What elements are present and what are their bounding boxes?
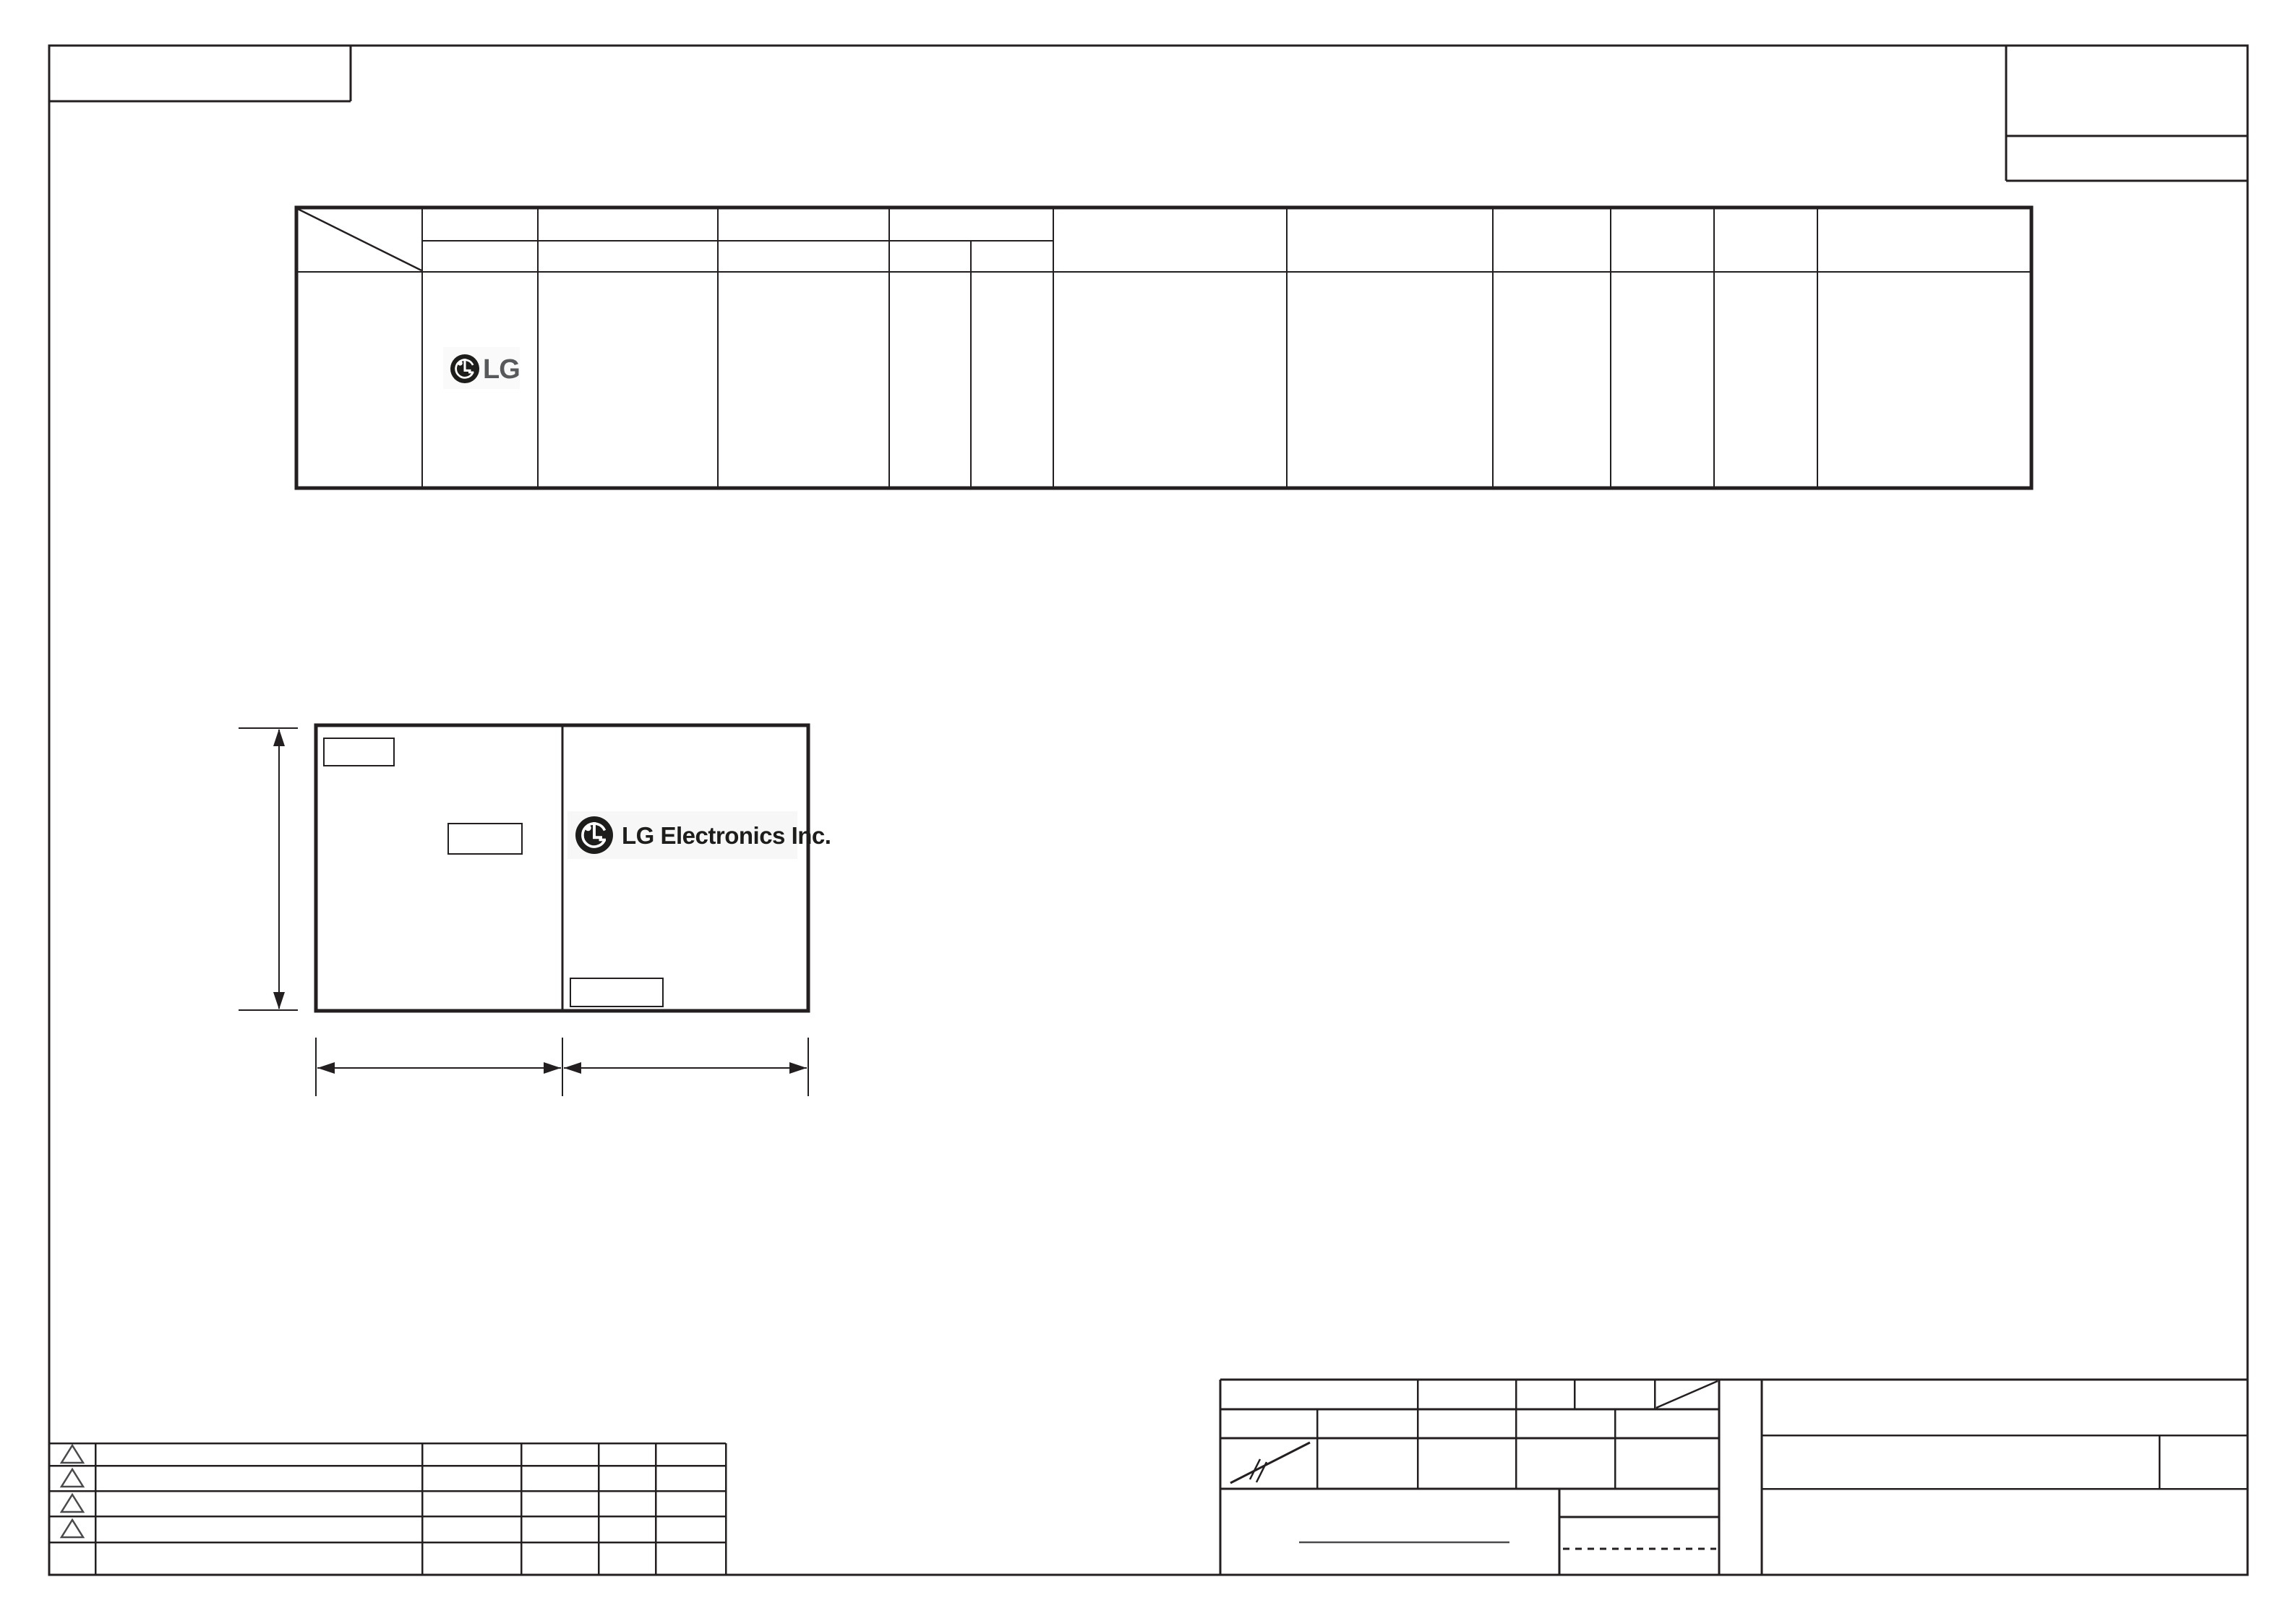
- revision-table-column-lines: [95, 1443, 726, 1575]
- height-dimension: [239, 728, 298, 1010]
- scale-strike-icon: [1230, 1443, 1310, 1483]
- revision-table: [49, 1443, 726, 1575]
- label-field-box-1: [324, 738, 394, 766]
- drawing-sheet: LG LG Electronics Inc.: [0, 0, 2296, 1624]
- scale-strike-main-line: [1230, 1443, 1310, 1483]
- label-field-box-3: [570, 978, 663, 1007]
- spec-table-column-lines: [422, 208, 1817, 488]
- title-block-bottom-dividers: [1559, 1489, 1719, 1575]
- corner-diagonal-icon: [1656, 1381, 1718, 1408]
- revision-triangle-icon: [61, 1469, 83, 1487]
- shipping-label: LG Electronics Inc.: [316, 725, 831, 1011]
- label-logo-text: LG Electronics Inc.: [622, 822, 831, 849]
- revision-triangle-icon: [61, 1445, 83, 1463]
- top-right-info-box: [2006, 46, 2248, 181]
- revision-triangle-icon: [61, 1520, 83, 1537]
- title-block-row23-dividers: [1317, 1409, 1615, 1489]
- top-left-title-box: [49, 46, 351, 101]
- top-right-info-box-lines: [2006, 46, 2248, 181]
- revision-table-row-lines: [49, 1443, 726, 1542]
- sheet-border-rect: [49, 46, 2248, 1575]
- label-lg-logo: LG Electronics Inc.: [567, 811, 831, 859]
- dimension-arrow-right-icon: [544, 1062, 561, 1074]
- lg-emblem-icon: [575, 816, 613, 854]
- top-left-title-box-lines: [49, 46, 351, 101]
- width-dimension: [316, 1038, 808, 1096]
- title-block-right-row-lines: [1762, 1435, 2248, 1489]
- dimension-arrow-left-icon: [564, 1062, 581, 1074]
- sheet-border: [49, 46, 2248, 1575]
- title-block-row1-dividers: [1418, 1380, 1655, 1409]
- engineering-drawing-canvas: LG LG Electronics Inc.: [0, 0, 2296, 1624]
- dimension-arrow-right-icon: [789, 1062, 807, 1074]
- spec-table: LG: [296, 208, 2031, 488]
- spec-table-lg-logo: LG: [443, 347, 520, 389]
- spec-table-header-diagonal: [298, 209, 421, 270]
- lg-emblem-icon: [450, 354, 479, 383]
- lg-logo-text: LG: [483, 354, 520, 385]
- revision-triangle-icon: [61, 1495, 83, 1512]
- spec-table-header-row-lines: [296, 241, 2031, 272]
- dimension-arrow-up-icon: [273, 729, 285, 746]
- dimension-arrow-left-icon: [317, 1062, 335, 1074]
- dimension-arrow-down-icon: [273, 992, 285, 1009]
- width-extension-lines: [316, 1038, 808, 1096]
- title-block: [1220, 1380, 2248, 1575]
- height-extension-lines: [239, 728, 298, 1010]
- spec-table-outer-border: [296, 208, 2031, 488]
- label-field-box-2: [448, 824, 522, 854]
